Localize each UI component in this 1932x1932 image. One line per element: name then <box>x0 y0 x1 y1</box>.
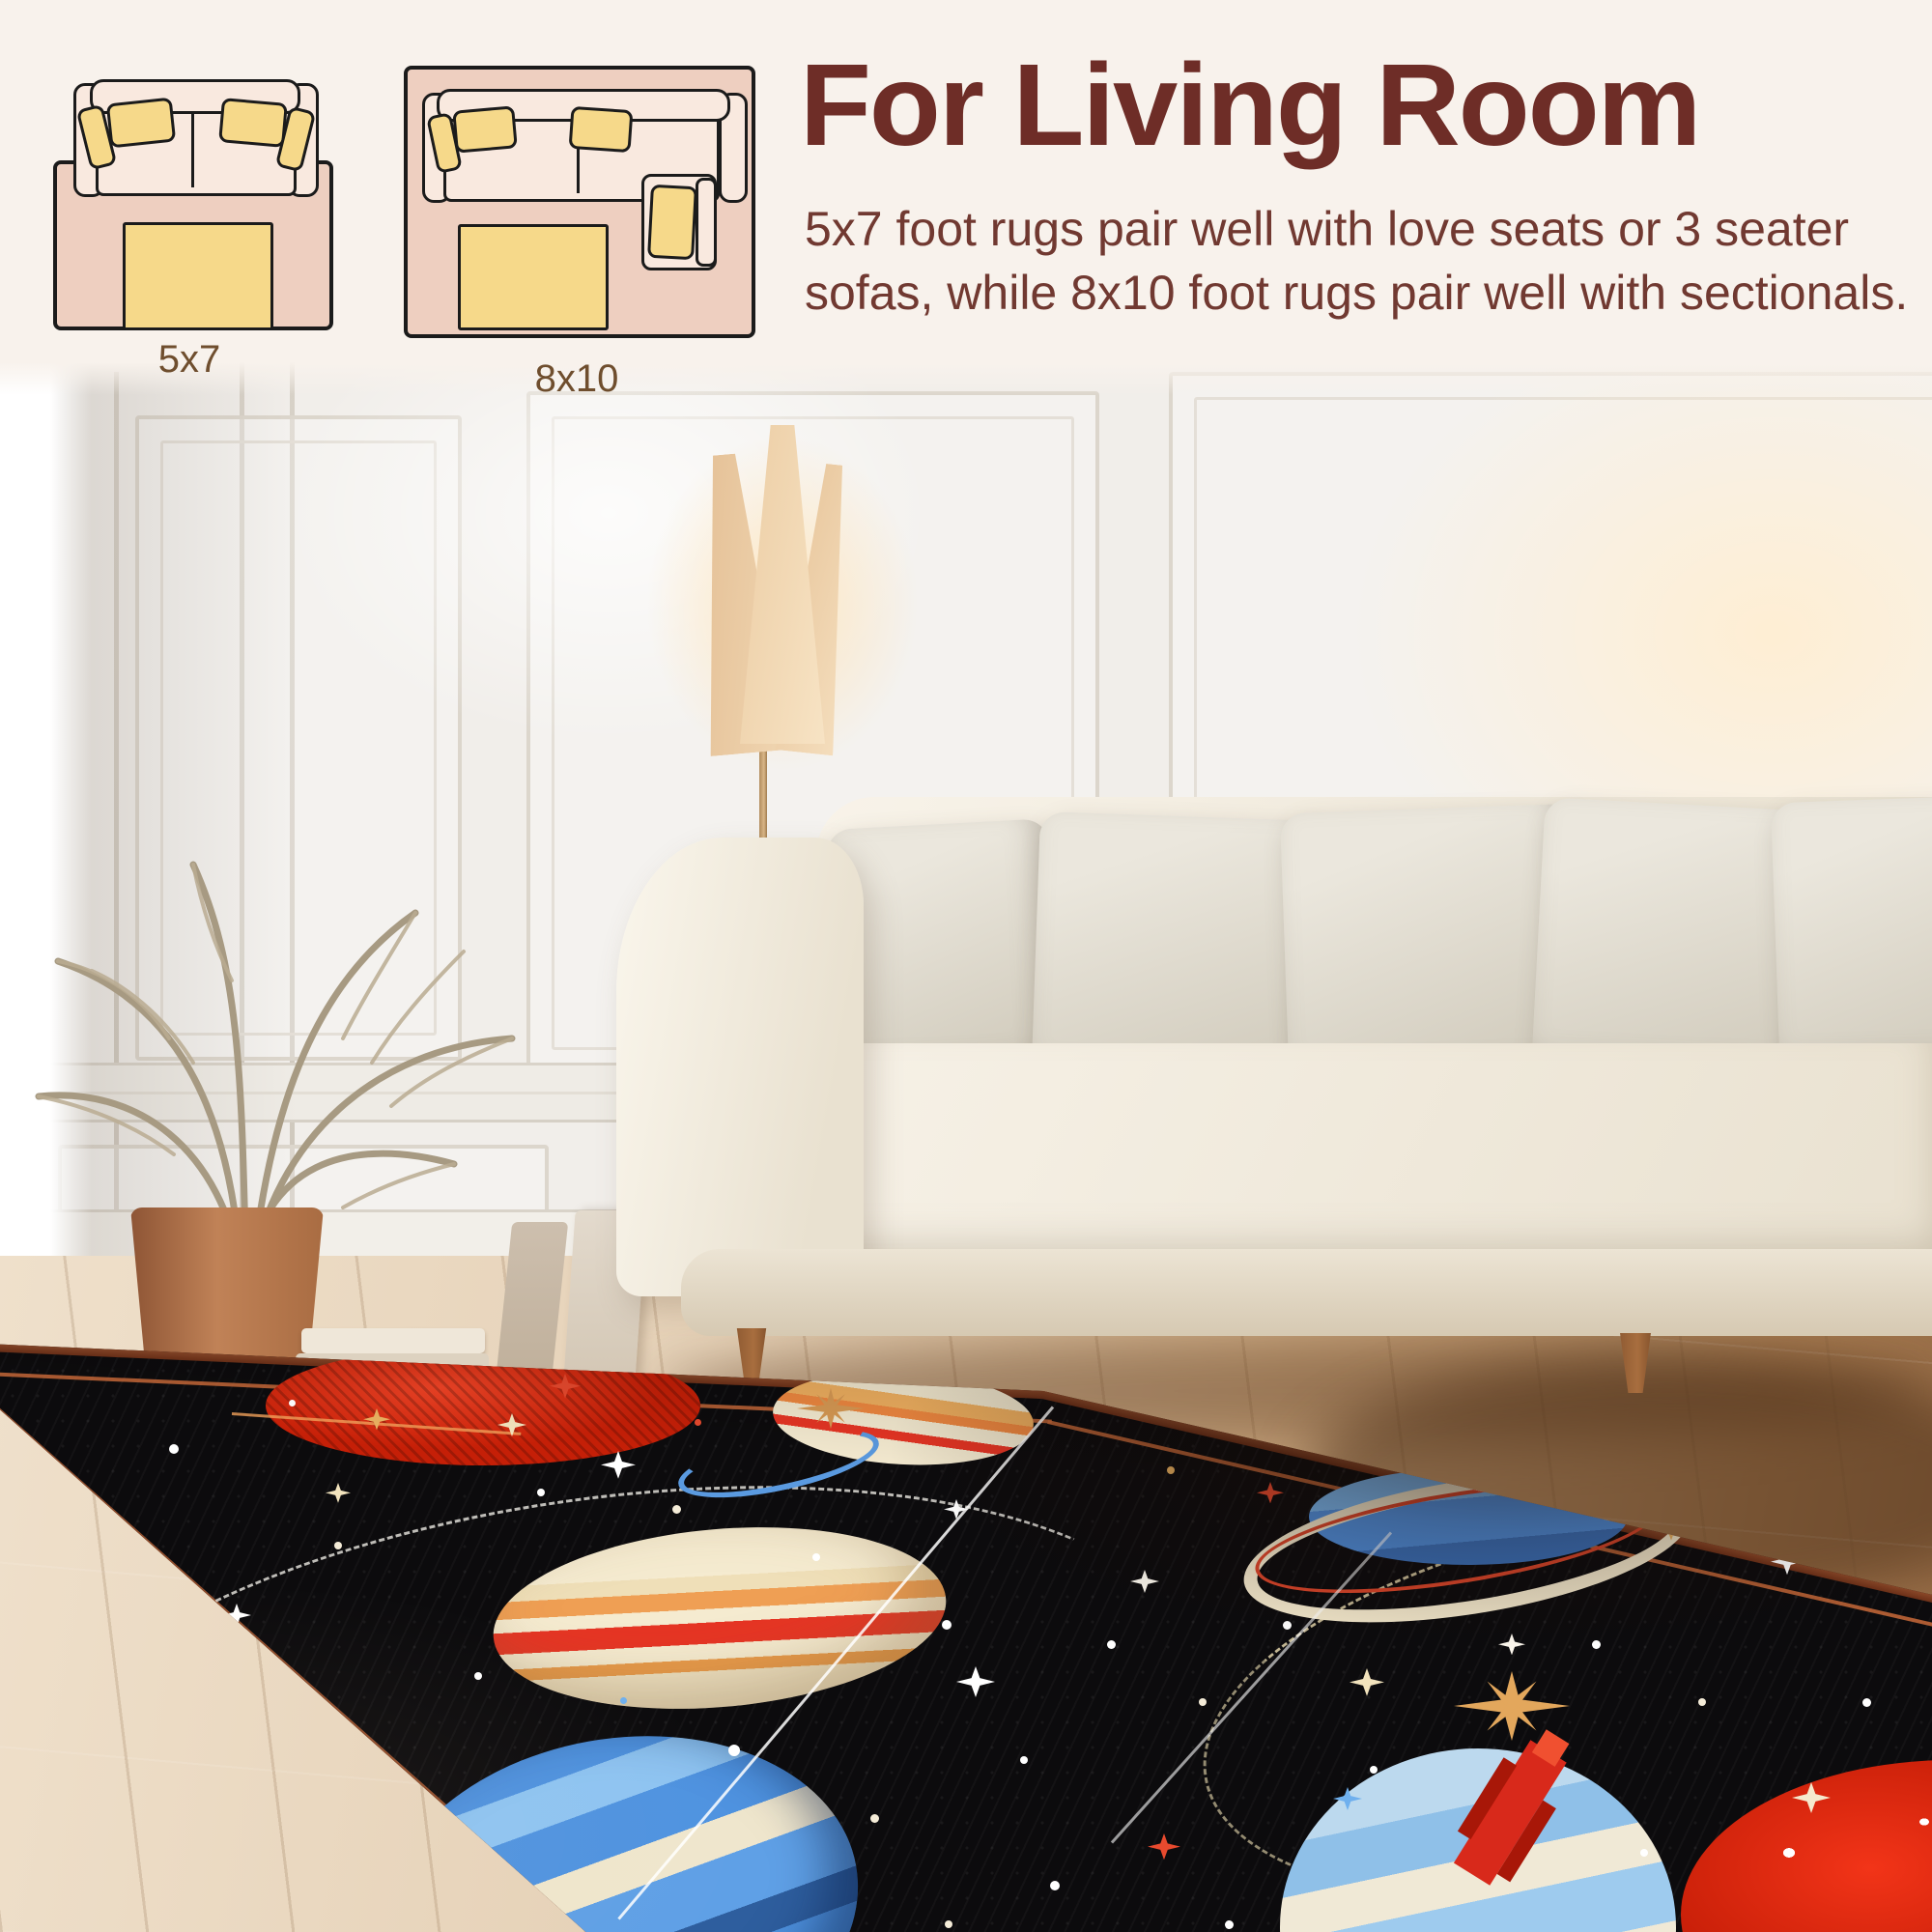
sofa-armrest <box>616 838 864 1296</box>
pillow-illustration <box>452 105 518 153</box>
armchair-back-illustration <box>696 178 717 267</box>
product-infographic: 5x7 8x10 For Living Room 5x7 foot rugs p… <box>0 0 1932 1932</box>
armchair-cushion-illustration <box>647 185 697 260</box>
description-line-2: sofas, while 8x10 foot rugs pair well wi… <box>805 269 1930 317</box>
pillow-illustration <box>569 106 634 153</box>
sofa-base <box>681 1249 1932 1336</box>
sofa-seat-divider <box>191 104 194 187</box>
pillow-illustration <box>218 98 288 148</box>
sofa-pillow <box>1771 795 1932 1084</box>
description-line-1: 5x7 foot rugs pair well with love seats … <box>805 205 1930 253</box>
page-title: For Living Room <box>800 37 1920 172</box>
header: 5x7 8x10 For Living Room 5x7 foot rugs p… <box>0 0 1932 362</box>
sofa-seat-cushion <box>676 1043 1932 1270</box>
rug-size-label-5x7: 5x7 <box>93 338 286 382</box>
coffee-table-illustration <box>458 224 609 330</box>
coffee-table-illustration <box>123 222 273 330</box>
rug-size-label-8x10: 8x10 <box>461 357 693 401</box>
pillow-illustration <box>106 98 176 149</box>
header-photo-blend <box>0 362 1932 395</box>
book <box>301 1328 485 1353</box>
